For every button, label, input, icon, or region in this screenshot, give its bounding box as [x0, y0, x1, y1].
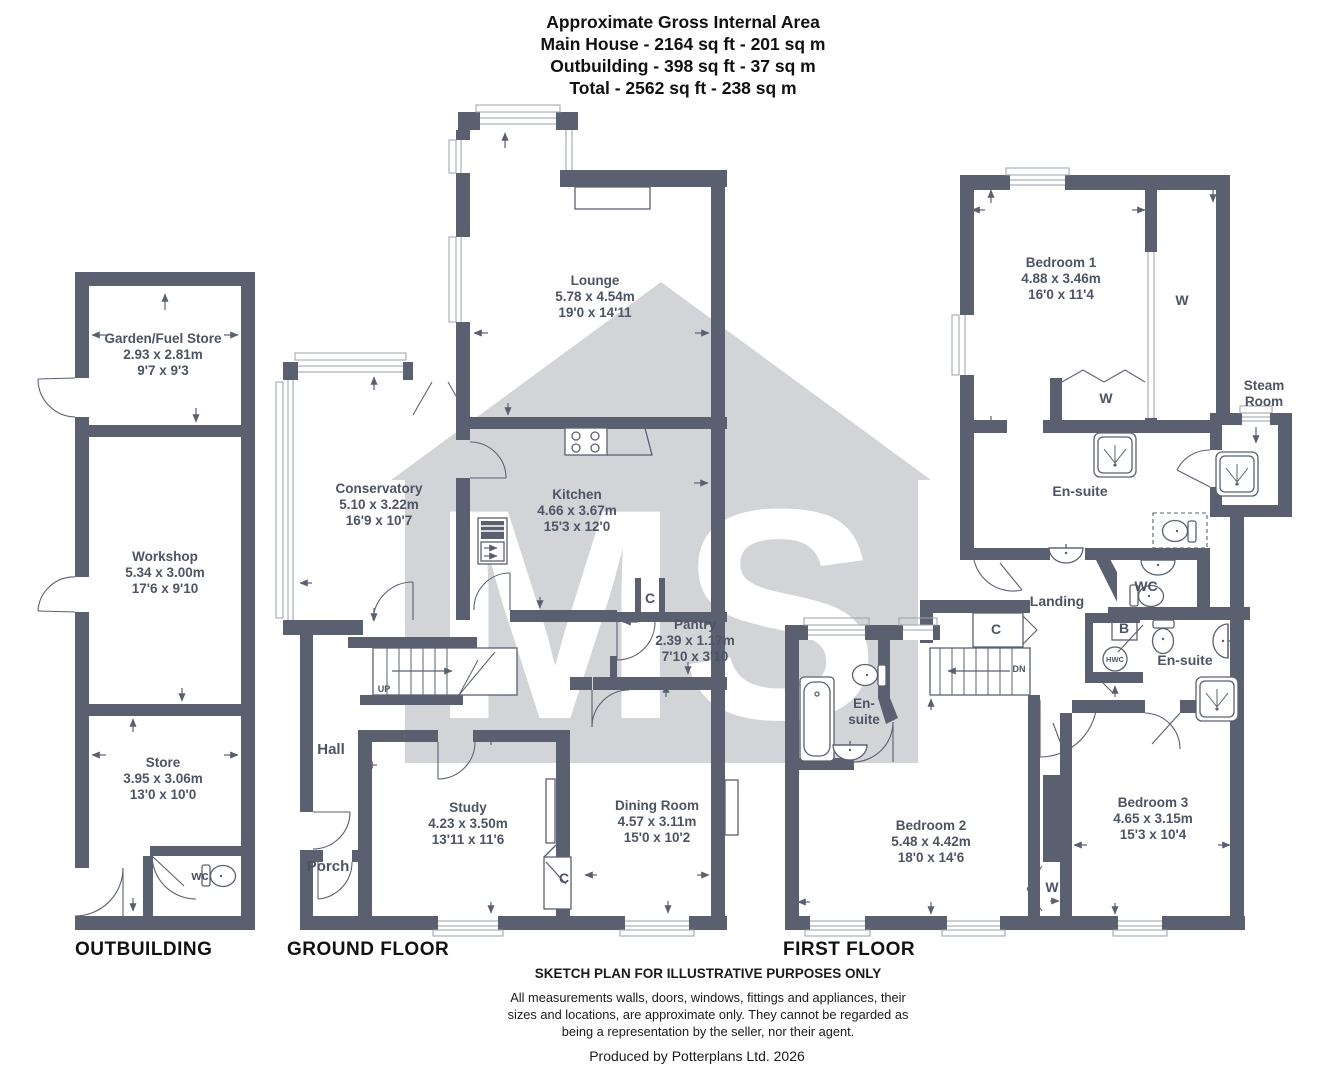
hwc-label: HWC — [1106, 655, 1124, 664]
room-metric: 4.66 x 3.67m — [537, 503, 617, 519]
room-imperial: 15'0 x 10'2 — [615, 830, 699, 846]
floor-title-outbuilding: OUTBUILDING — [75, 939, 212, 961]
room-label-store: Store 3.95 x 3.06m 13'0 x 10'0 — [123, 755, 203, 803]
room-name: Workshop — [125, 549, 205, 565]
room-label-study: Study 4.23 x 3.50m 13'11 x 11'6 — [428, 800, 508, 848]
header-outbuilding: Outbuilding - 398 sq ft - 37 sq m — [550, 56, 815, 77]
room-label-ensuite1: En-suite — [1052, 483, 1107, 499]
room-label-hall: Hall — [317, 741, 345, 758]
cupboard-label-kitchen: C — [645, 590, 655, 606]
steam-line1: Steam — [1244, 378, 1285, 394]
room-metric: 4.65 x 3.15m — [1113, 811, 1193, 827]
staircase-ground — [373, 648, 517, 695]
room-name: Study — [428, 800, 508, 816]
room-imperial: 16'9 x 10'7 — [335, 513, 422, 529]
closet-b — [1085, 613, 1143, 693]
room-metric: 5.34 x 3.00m — [125, 565, 205, 581]
room-name: Bedroom 1 — [1021, 255, 1101, 271]
wardrobe-label-bottom: W — [1099, 390, 1112, 406]
floorplan-page: MS — [0, 0, 1334, 1080]
room-name: Garden/Fuel Store — [104, 331, 221, 347]
room-name: Store — [123, 755, 203, 771]
room-imperial: 15'3 x 10'4 — [1113, 827, 1193, 843]
room-label-kitchen: Kitchen 4.66 x 3.67m 15'3 x 12'0 — [537, 487, 617, 535]
room-label-steam-room: Steam Room — [1244, 378, 1285, 410]
room-name: Bedroom 2 — [891, 818, 971, 834]
room-metric: 4.88 x 3.46m — [1021, 271, 1101, 287]
room-metric: 4.23 x 3.50m — [428, 816, 508, 832]
room-imperial: 9'7 x 9'3 — [104, 363, 221, 379]
room-label-porch: Porch — [307, 858, 350, 875]
floor-title-ground: GROUND FLOOR — [287, 939, 449, 961]
floorplan-canvas: MS — [0, 0, 1334, 1080]
room-imperial: 19'0 x 14'11 — [555, 305, 635, 321]
door-arcs-outbuilding — [38, 378, 196, 916]
room-name: Conservatory — [335, 481, 422, 497]
room-metric: 5.48 x 4.42m — [891, 834, 971, 850]
room-label-lounge: Lounge 5.78 x 4.54m 19'0 x 14'11 — [555, 273, 635, 321]
footer-produced-by: Produced by Potterplans Ltd. 2026 — [589, 1048, 805, 1064]
room-label-garden-fuel-store: Garden/Fuel Store 2.93 x 2.81m 9'7 x 9'3 — [104, 331, 221, 379]
room-label-pantry: Pantry 2.39 x 1.17m 7'10 x 3'10 — [655, 617, 735, 665]
room-metric: 4.57 x 3.11m — [615, 814, 699, 830]
room-name: Lounge — [555, 273, 635, 289]
shower-icon-ensuite1 — [1094, 433, 1136, 477]
room-metric: 2.39 x 1.17m — [655, 633, 735, 649]
room-imperial: 17'6 x 9'10 — [125, 581, 205, 597]
wardrobe-label-right: W — [1175, 292, 1188, 308]
room-imperial: 16'0 x 11'4 — [1021, 287, 1101, 303]
footer-title: SKETCH PLAN FOR ILLUSTRATIVE PURPOSES ON… — [535, 966, 882, 981]
room-metric: 5.10 x 3.22m — [335, 497, 422, 513]
stairs-dn-label: DN — [1013, 664, 1026, 674]
toilet-icon-ensuite1 — [1163, 521, 1197, 543]
room-label-workshop: Workshop 5.34 x 3.00m 17'6 x 9'10 — [125, 549, 205, 597]
ensuite-line1: En- — [848, 696, 880, 712]
ensuite-line2: suite — [848, 712, 880, 728]
room-label-dining-room: Dining Room 4.57 x 3.11m 15'0 x 10'2 — [615, 798, 699, 846]
wardrobe-label-mid: W — [1045, 879, 1058, 895]
room-label-conservatory: Conservatory 5.10 x 3.22m 16'9 x 10'7 — [335, 481, 422, 529]
room-label-landing: Landing — [1030, 593, 1084, 609]
footer-disclaimer-line1: All measurements walls, doors, windows, … — [510, 990, 905, 1005]
room-name: Pantry — [655, 617, 735, 633]
room-name: Kitchen — [537, 487, 617, 503]
room-metric: 2.93 x 2.81m — [104, 347, 221, 363]
stairs-up-label: UP — [378, 684, 391, 694]
room-imperial: 13'11 x 11'6 — [428, 832, 508, 848]
appliance-icon — [478, 518, 507, 564]
footer-disclaimer-line3: being a representation by the seller, no… — [562, 1024, 854, 1039]
header-title: Approximate Gross Internal Area — [546, 12, 820, 33]
room-imperial: 15'3 x 12'0 — [537, 519, 617, 535]
room-metric: 3.95 x 3.06m — [123, 771, 203, 787]
room-imperial: 18'0 x 14'6 — [891, 850, 971, 866]
room-label-ensuite2: En- suite — [848, 696, 880, 728]
floor-title-first: FIRST FLOOR — [783, 939, 915, 961]
steam-line2: Room — [1244, 394, 1285, 410]
room-label-bedroom1: Bedroom 1 4.88 x 3.46m 16'0 x 11'4 — [1021, 255, 1101, 303]
room-label-wc-outbuilding: wc — [191, 868, 208, 883]
room-name: Bedroom 3 — [1113, 795, 1193, 811]
footer-disclaimer-line2: sizes and locations, are approximate onl… — [508, 1007, 909, 1022]
room-imperial: 7'10 x 3'10 — [655, 649, 735, 665]
room-label-bedroom2: Bedroom 2 5.48 x 4.42m 18'0 x 14'6 — [891, 818, 971, 866]
cupboard-label-study: C — [559, 870, 569, 886]
header-total: Total - 2562 sq ft - 238 sq m — [569, 78, 796, 99]
room-imperial: 13'0 x 10'0 — [123, 787, 203, 803]
header-main-house: Main House - 2164 sq ft - 201 sq m — [541, 34, 826, 55]
basin-icon-ensuite1 — [1049, 544, 1083, 563]
room-label-wc-first: WC — [1134, 578, 1157, 594]
room-name: Dining Room — [615, 798, 699, 814]
room-label-ensuite3: En-suite — [1157, 652, 1212, 668]
cupboard-label-first: C — [991, 621, 1001, 637]
boiler-label: B — [1119, 620, 1129, 636]
room-metric: 5.78 x 4.54m — [555, 289, 635, 305]
room-label-bedroom3: Bedroom 3 4.65 x 3.15m 15'3 x 10'4 — [1113, 795, 1193, 843]
